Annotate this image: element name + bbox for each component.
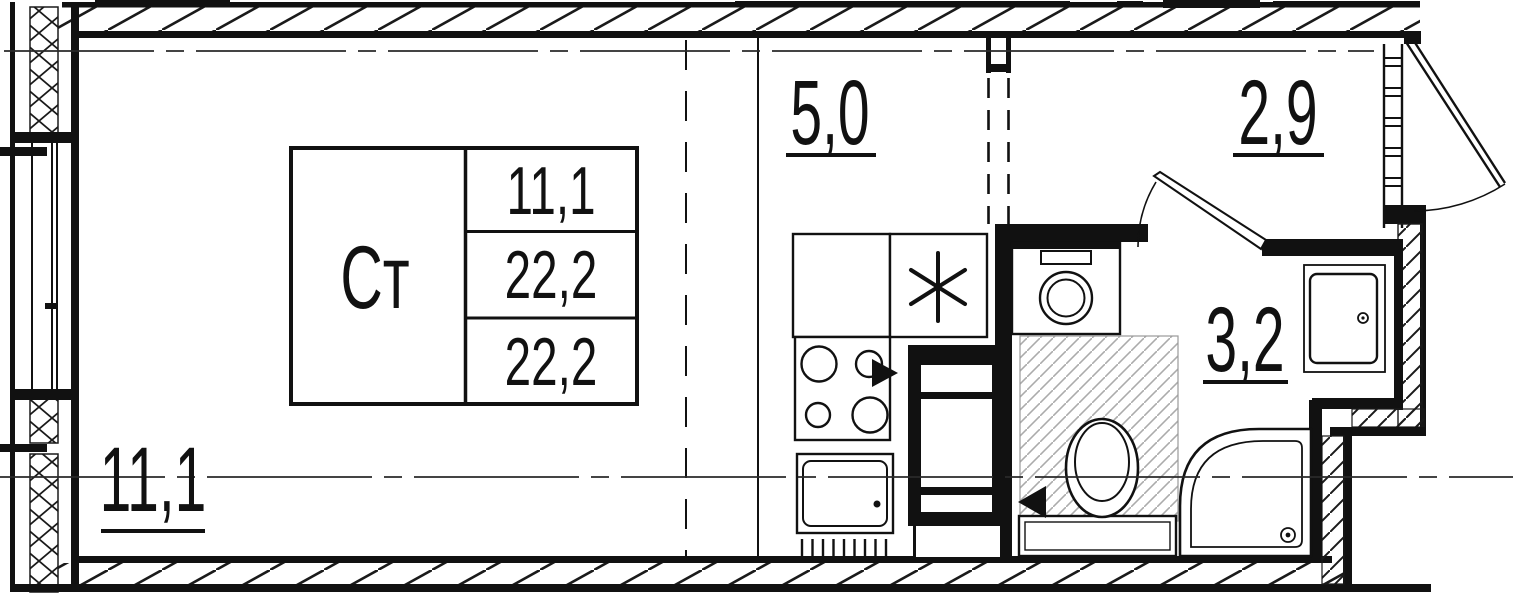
adjacent-structure-bar [1273,1,1420,6]
room-label-hall: 2,9 [1238,62,1317,164]
adjacent-structure-bar [735,1,1070,6]
axis-tick-left-bottom [0,444,47,452]
floor-plan-page: Ст 11,1 22,2 22,2 11,1 5,0 2,9 3,2 [0,0,1513,600]
left-wall-outer-edge [10,2,15,592]
window-mullion-tick [45,303,58,309]
stove-burner [806,403,830,427]
window-opening [15,143,71,389]
bottom-wall-outer-edge [10,584,1431,592]
room-label-bathroom: 3,2 [1205,289,1284,391]
washing-machine [1304,265,1385,372]
bathroom-top-wall-right [1262,239,1403,256]
left-wall-insulation [30,7,58,133]
left-wall-insulation [30,454,58,592]
unit-info-table: Ст 11,1 22,2 22,2 [291,148,637,404]
left-wall-insulation [30,393,58,443]
shower-cabin [1180,429,1311,556]
stove-burner [802,347,837,382]
toilet-bowl [1066,419,1138,517]
unit-area-row-3: 22,2 [505,325,598,400]
partition-stub [986,64,1011,72]
room-label-kitchen: 5,0 [790,62,869,164]
room-label-living: 11,1 [100,429,207,531]
unit-area-row-2: 22,2 [505,238,598,313]
window-jamb-top [10,132,78,143]
floor-plan-svg: Ст 11,1 22,2 22,2 11,1 5,0 2,9 3,2 [0,0,1513,600]
window [10,132,78,400]
wall-step [1312,398,1396,409]
top-wall-hatch [58,7,1420,33]
bottom-wall-hatch [58,563,1352,584]
washbasin-faucet [1041,251,1091,264]
adjacent-structure-bar [95,0,230,7]
vent-shaft-base [913,526,1003,557]
adjacent-structure-bar [1117,1,1143,6]
window-jamb-bottom [10,389,78,400]
entrance-wall-cap [1384,205,1424,224]
kitchen-counter [793,234,987,337]
right-wall-mass [1352,409,1424,427]
unit-area-row-1: 11,1 [506,154,595,229]
kitchen-stove [795,337,890,440]
washbasin [1012,243,1120,334]
cabinet-knob [874,501,881,508]
stove-burner [853,398,888,433]
vent-shaft [908,345,1011,557]
niche-right-wall [1394,252,1403,410]
top-wall-inner-face [74,31,1405,38]
bathroom-top-wall-left [995,224,1148,242]
unit-type-label: Ст [340,228,409,327]
left-wall-inner-face [71,7,79,592]
axis-tick-left-top [0,147,47,156]
right-wall-mass [1322,436,1344,584]
adjacent-structure-bar [1163,0,1260,8]
